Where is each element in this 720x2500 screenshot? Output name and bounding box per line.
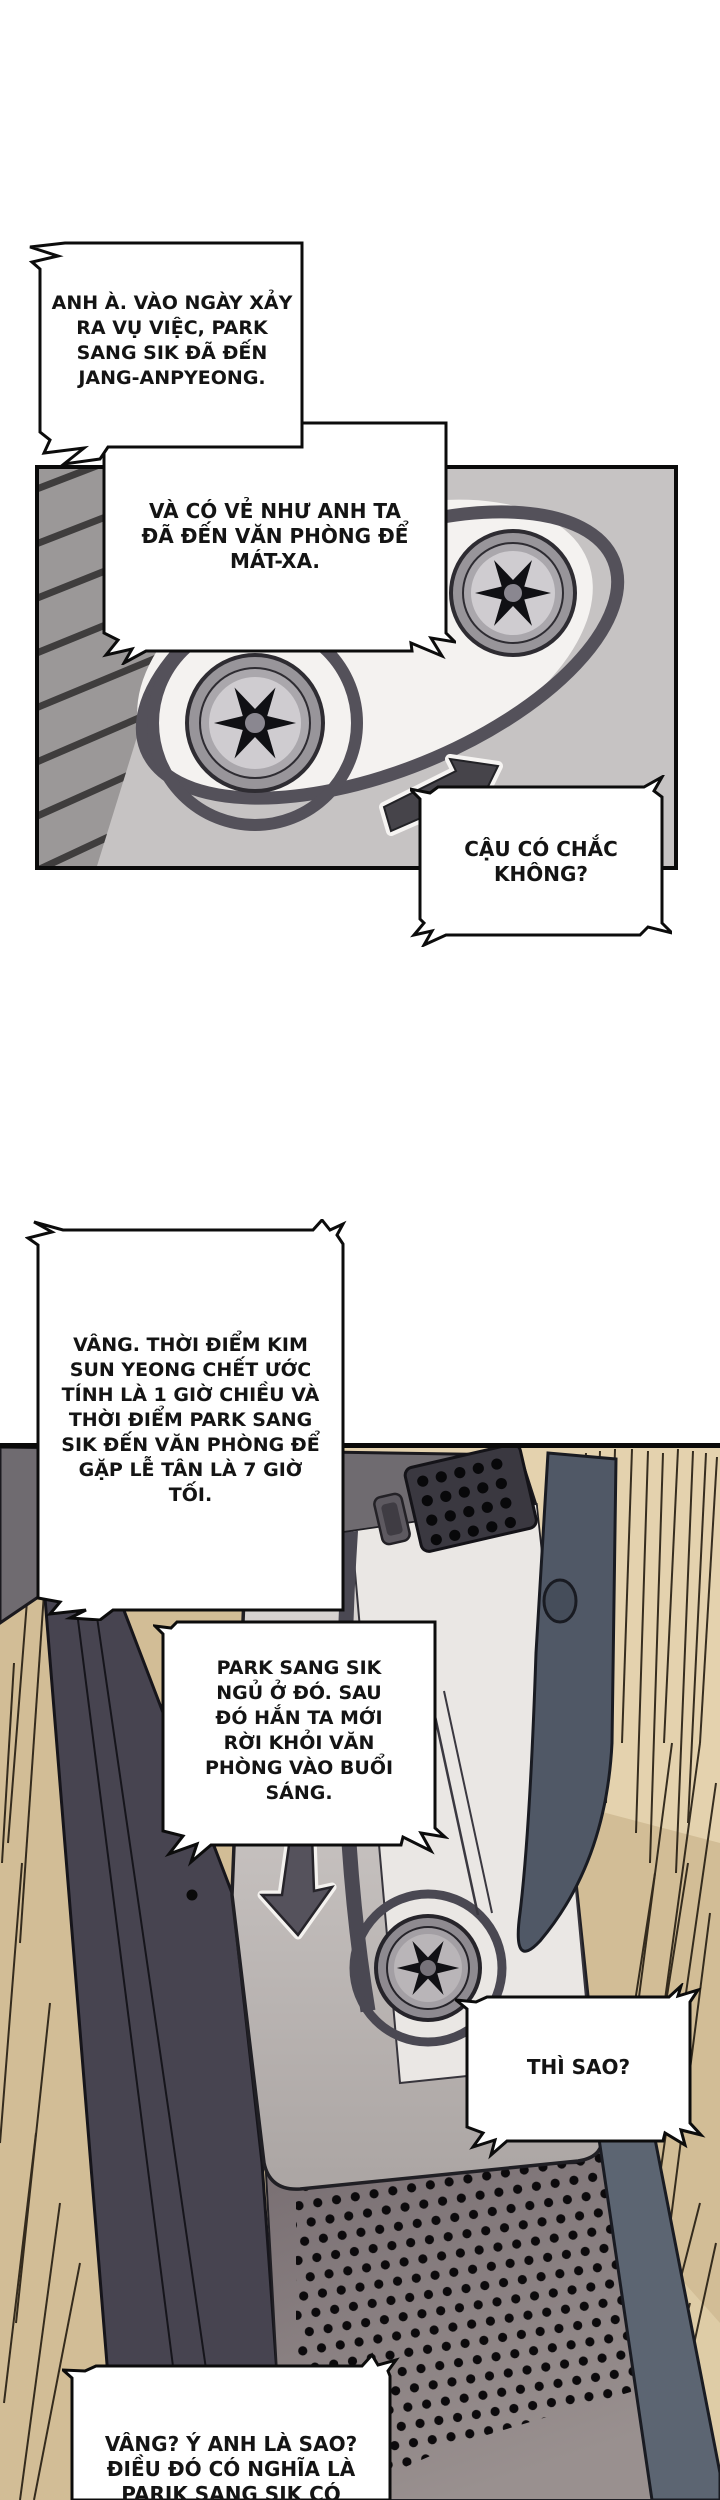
bubble-line: PARIK SANG SIK CÓ xyxy=(72,2482,390,2500)
speech-bubble-6: THÌ SAO? xyxy=(455,1983,707,2165)
bubble-line: THÌ SAO? xyxy=(467,2055,690,2080)
microphone-hole xyxy=(187,1890,198,1901)
bubble-line: VÂNG? Ý ANH LÀ SAO? xyxy=(72,2432,390,2457)
bubble-line: GẶP LỄ TÂN LÀ 7 GIỜ xyxy=(38,1458,343,1483)
bubble-line: SANG SIK ĐÃ ĐẾN xyxy=(40,341,304,366)
bubble-line: THỜI ĐIỂM PARK SANG xyxy=(38,1408,343,1433)
bubble-line: ĐIỀU ĐÓ CÓ NGHĨA LÀ xyxy=(72,2457,390,2482)
bubble-line: NGỦ Ở ĐÓ. SAU xyxy=(163,1681,435,1706)
bubble-line: TÍNH LÀ 1 GIỜ CHIỀU VÀ xyxy=(38,1383,343,1408)
bubble-line: KHÔNG? xyxy=(422,862,660,887)
bubble-line: JANG-ANPYEONG. xyxy=(40,366,304,391)
bubble-line: RỜI KHỎI VĂN xyxy=(163,1731,435,1756)
bubble-line: ANH À. VÀO NGÀY XẢY xyxy=(40,291,304,316)
speech-bubble-4: VÂNG. THỜI ĐIỂM KIM SUN YEONG CHẾT ƯỚC T… xyxy=(25,1219,357,1621)
cassette-reel-right xyxy=(451,531,575,655)
bubble-line: CẬU CÓ CHẮC xyxy=(422,837,660,862)
bubble-line: SÁNG. xyxy=(163,1781,435,1806)
speech-bubble-5: PARK SANG SIK NGỦ Ở ĐÓ. SAU ĐÓ HẮN TA MỚ… xyxy=(153,1610,449,1872)
speech-bubble-1: ANH À. VÀO NGÀY XẢY RA VỤ VIỆC, PARK SAN… xyxy=(22,233,322,473)
speech-bubble-7: VÂNG? Ý ANH LÀ SAO? ĐIỀU ĐÓ CÓ NGHĨA LÀ … xyxy=(62,2352,402,2500)
bubble-line: SUN YEONG CHẾT ƯỚC xyxy=(38,1358,343,1383)
bubble-line: VÀ CÓ VẺ NHƯ ANH TA xyxy=(104,499,446,524)
bubble-line: TỐI. xyxy=(38,1483,343,1508)
bubble-line: ĐÃ ĐẾN VĂN PHÒNG ĐỂ xyxy=(104,524,446,549)
bubble-line: ĐÓ HẮN TA MỚI xyxy=(163,1706,435,1731)
speech-bubble-3: CẬU CÓ CHẮC KHÔNG? xyxy=(410,775,672,947)
cassette-reel-left xyxy=(187,655,323,791)
bubble-line: PARK SANG SIK xyxy=(163,1656,435,1681)
bubble-line: VÂNG. THỜI ĐIỂM KIM xyxy=(38,1333,343,1358)
comic-page: VÀ CÓ VẺ NHƯ ANH TA ĐÃ ĐẾN VĂN PHÒNG ĐỂ … xyxy=(0,0,720,2500)
bubble-line: RA VỤ VIỆC, PARK xyxy=(40,316,304,341)
bubble-line: MÁT-XA. xyxy=(104,549,446,574)
bubble-line: PHÒNG VÀO BUỔI xyxy=(163,1756,435,1781)
bubble-line: SIK ĐẾN VĂN PHÒNG ĐỂ xyxy=(38,1433,343,1458)
